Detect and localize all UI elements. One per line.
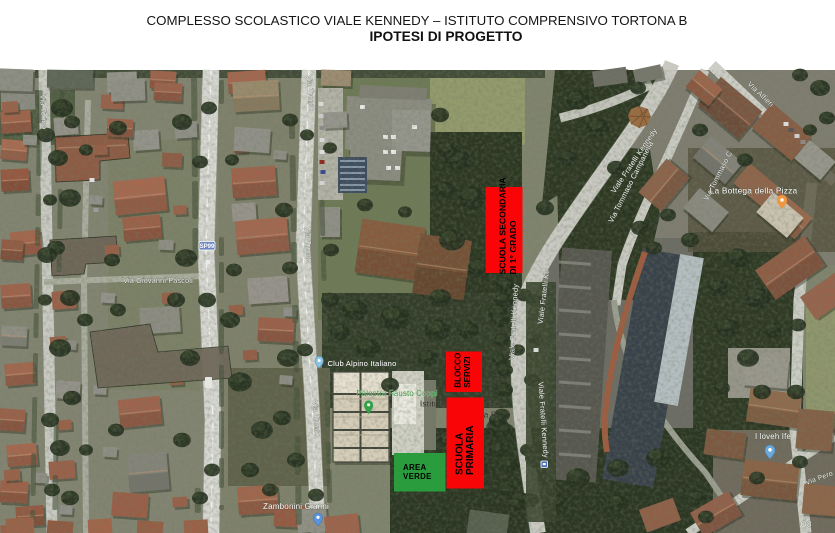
svg-text:SCUOLA SECONDARIA: SCUOLA SECONDARIA — [498, 177, 508, 275]
svg-text:BLOCCO: BLOCCO — [453, 353, 462, 388]
svg-text:COMPLESSO SCOLASTICO VIALE KEN: COMPLESSO SCOLASTICO VIALE KENNEDY – IST… — [147, 13, 688, 28]
svg-text:SCUOLA: SCUOLA — [454, 433, 465, 475]
svg-text:Palestra Fausto Coppi: Palestra Fausto Coppi — [356, 389, 437, 398]
svg-text:PRIMARIA: PRIMARIA — [465, 426, 476, 475]
svg-text:SP99: SP99 — [200, 244, 215, 250]
svg-text:SERVIZI: SERVIZI — [463, 356, 472, 387]
svg-text:AREA: AREA — [403, 463, 427, 472]
svg-text:I loveh Ife: I loveh Ife — [755, 432, 791, 441]
svg-text:Via Giovanni Pascoli: Via Giovanni Pascoli — [123, 276, 193, 285]
svg-text:Zambonini Gianni: Zambonini Gianni — [263, 502, 329, 511]
svg-text:Club Alpino Italiano: Club Alpino Italiano — [327, 359, 396, 368]
svg-text:VERDE: VERDE — [403, 472, 432, 481]
svg-text:Q8: Q8 — [800, 520, 811, 529]
svg-text:La Bottega della Pizza: La Bottega della Pizza — [710, 186, 798, 196]
svg-text:DI 1° GRADO: DI 1° GRADO — [508, 220, 518, 274]
svg-text:Via Torino: Via Torino — [38, 94, 49, 130]
svg-text:IPOTESI DI PROGETTO: IPOTESI DI PROGETTO — [369, 29, 522, 44]
